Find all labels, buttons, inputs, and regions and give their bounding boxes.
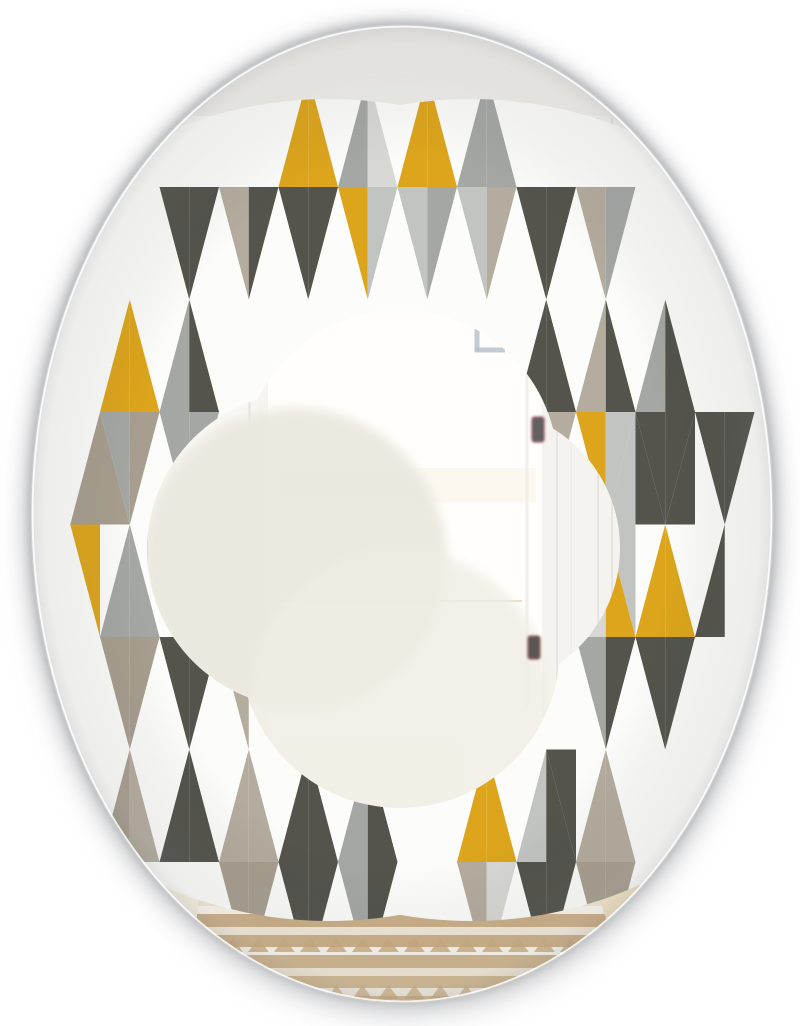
rug-triangle — [586, 985, 607, 999]
mirror-vignette — [31, 25, 773, 1003]
mirror-scene — [0, 0, 800, 1026]
rug-triangle — [560, 985, 581, 999]
rug-triangle — [612, 938, 633, 952]
product-photo — [0, 0, 800, 1026]
rug-triangle — [248, 985, 269, 999]
wood-patch — [600, 940, 778, 1020]
rug-triangle — [170, 985, 191, 999]
rug-triangle — [638, 985, 659, 999]
rug-triangle — [612, 985, 633, 999]
rug-triangle — [222, 985, 243, 999]
rug-triangle — [196, 985, 217, 999]
rug-triangle — [638, 938, 659, 952]
rug-triangle — [170, 938, 191, 952]
